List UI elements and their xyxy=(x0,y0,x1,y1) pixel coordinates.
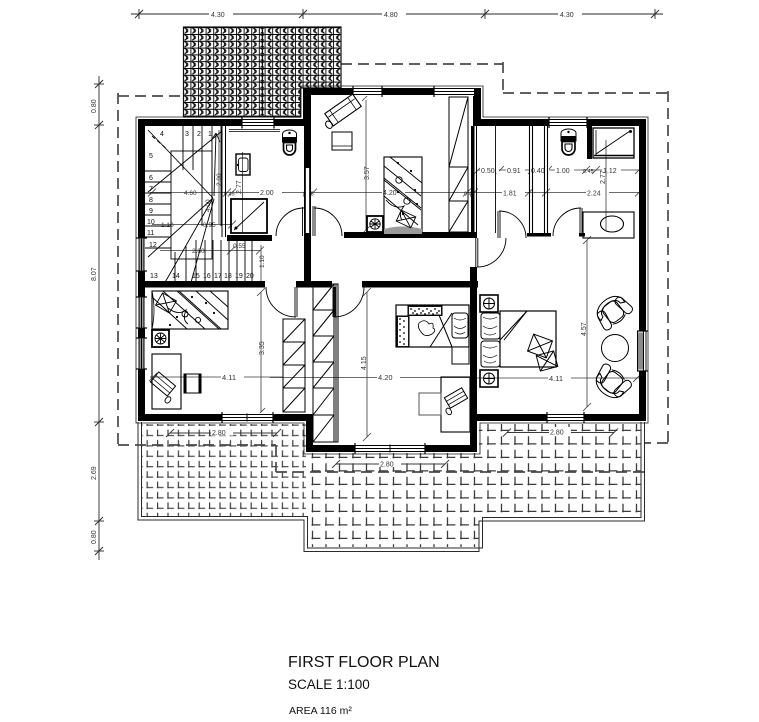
svg-text:4.60: 4.60 xyxy=(184,190,197,197)
svg-text:4.80: 4.80 xyxy=(384,12,398,19)
svg-text:6: 6 xyxy=(149,175,153,182)
svg-text:4.11: 4.11 xyxy=(222,373,236,382)
svg-text:FIRST FLOOR PLAN: FIRST FLOOR PLAN xyxy=(288,654,440,671)
svg-text:14: 14 xyxy=(172,273,180,280)
svg-text:17: 17 xyxy=(214,273,222,280)
svg-text:3.57: 3.57 xyxy=(364,166,371,180)
svg-text:11: 11 xyxy=(147,230,154,237)
svg-text:2.00: 2.00 xyxy=(260,190,274,197)
svg-text:1.00: 1.00 xyxy=(556,168,570,175)
svg-text:2.77: 2.77 xyxy=(236,180,243,194)
svg-text:0.45: 0.45 xyxy=(583,169,594,175)
svg-text:18: 18 xyxy=(224,273,232,280)
svg-text:1.10: 1.10 xyxy=(161,222,174,229)
svg-text:SCALE 1:100: SCALE 1:100 xyxy=(288,677,370,692)
svg-text:4.15: 4.15 xyxy=(361,356,368,370)
svg-text:4.30: 4.30 xyxy=(211,12,225,19)
svg-text:0.40: 0.40 xyxy=(531,168,545,175)
svg-text:4.30: 4.30 xyxy=(560,12,574,19)
svg-text:1.10: 1.10 xyxy=(259,255,266,268)
svg-text:AREA 116 m²: AREA 116 m² xyxy=(289,705,352,717)
svg-text:0.50: 0.50 xyxy=(481,168,495,175)
svg-text:15: 15 xyxy=(192,273,200,280)
svg-text:8.07: 8.07 xyxy=(91,267,98,281)
svg-text:0.91: 0.91 xyxy=(507,168,521,175)
svg-text:4.20: 4.20 xyxy=(383,190,397,197)
svg-text:9: 9 xyxy=(149,208,153,215)
svg-text:3.35: 3.35 xyxy=(259,341,266,355)
svg-text:10: 10 xyxy=(147,219,155,226)
svg-text:0.95: 0.95 xyxy=(203,222,216,229)
svg-text:7: 7 xyxy=(149,186,153,193)
svg-text:12: 12 xyxy=(149,242,157,249)
svg-text:4.11: 4.11 xyxy=(549,374,563,383)
svg-text:4.20: 4.20 xyxy=(378,373,393,382)
svg-text:19: 19 xyxy=(235,273,243,280)
svg-text:1: 1 xyxy=(208,131,212,138)
svg-text:2.77: 2.77 xyxy=(600,170,607,184)
svg-text:5: 5 xyxy=(149,153,153,160)
svg-text:0.80: 0.80 xyxy=(91,99,98,113)
svg-text:1.81: 1.81 xyxy=(503,191,517,198)
svg-text:2.24: 2.24 xyxy=(587,191,601,198)
svg-text:16: 16 xyxy=(203,273,211,280)
svg-text:2.80: 2.80 xyxy=(380,462,394,469)
svg-text:2.80: 2.80 xyxy=(212,430,226,437)
svg-text:4.57: 4.57 xyxy=(581,322,588,336)
svg-text:2.80: 2.80 xyxy=(550,430,564,437)
svg-text:2: 2 xyxy=(197,131,201,138)
svg-text:20: 20 xyxy=(246,273,254,280)
svg-text:13: 13 xyxy=(150,273,158,280)
svg-text:3: 3 xyxy=(185,131,189,138)
svg-text:8: 8 xyxy=(149,197,153,204)
svg-text:4: 4 xyxy=(160,131,164,138)
svg-text:0.80: 0.80 xyxy=(91,530,98,544)
svg-text:2.69: 2.69 xyxy=(91,466,98,480)
